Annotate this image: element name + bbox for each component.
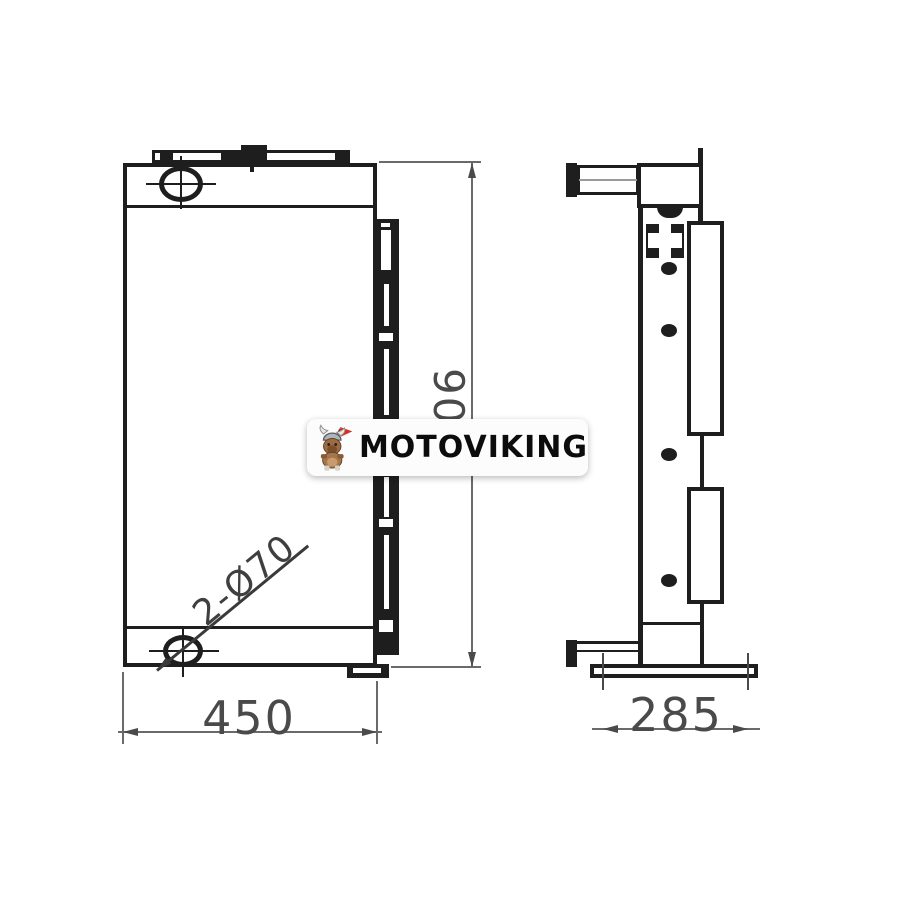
side-column-right-edge-mid bbox=[700, 436, 704, 487]
top-rail-tab-right bbox=[335, 153, 348, 162]
side-column-right-edge-low bbox=[700, 604, 704, 667]
mounting-dot bbox=[661, 448, 677, 461]
side-channel-slot bbox=[384, 535, 389, 609]
brand-mascot-icon bbox=[313, 422, 355, 474]
core-pad-lower bbox=[687, 487, 724, 604]
inlet-tube-flange bbox=[566, 163, 577, 197]
watermark-badge: MOTOVIKING bbox=[307, 419, 588, 476]
side-channel-slot bbox=[384, 349, 389, 415]
mounting-dot bbox=[661, 574, 677, 587]
core-pad-upper bbox=[687, 221, 724, 436]
top-port-crosshair-v bbox=[180, 156, 182, 209]
filler-cap-high bbox=[241, 145, 267, 163]
bottom-tank-divider bbox=[123, 626, 377, 629]
height-arrow-top bbox=[468, 163, 476, 178]
mounting-dot bbox=[661, 324, 677, 337]
base-plate bbox=[590, 664, 758, 678]
top-rail-tab-left bbox=[160, 153, 173, 162]
filler-cap-stem bbox=[250, 163, 254, 172]
side-bump bbox=[657, 207, 683, 218]
foot-bracket-mid bbox=[577, 650, 639, 652]
technical-drawing-canvas: 90 450 2-Ø70 bbox=[0, 0, 900, 900]
side-channel-gap bbox=[379, 620, 393, 632]
side-channel-gap bbox=[379, 333, 393, 341]
depth-dim-label: 285 bbox=[616, 688, 736, 742]
side-channel-gap bbox=[379, 519, 393, 527]
side-column-divider bbox=[641, 622, 702, 625]
height-ext-line-top bbox=[379, 161, 481, 163]
height-dim-label: 90 bbox=[424, 368, 472, 424]
top-tank-divider bbox=[123, 205, 377, 208]
side-top-stub bbox=[698, 148, 703, 165]
side-top-tank bbox=[637, 163, 703, 208]
side-channel-slot bbox=[381, 230, 391, 270]
brand-name: MOTOVIKING bbox=[359, 430, 588, 465]
width-arrow-left bbox=[123, 728, 138, 736]
side-column-left-edge bbox=[638, 207, 643, 667]
inlet-tube-midline bbox=[579, 179, 637, 181]
depth-ext-tick-right bbox=[747, 653, 749, 690]
depth-ext-tick-left bbox=[602, 653, 604, 690]
bottom-port-crosshair-h bbox=[149, 650, 219, 652]
width-dim-label: 450 bbox=[189, 691, 309, 745]
bottom-foot-tab-slot bbox=[353, 668, 381, 673]
side-channel-slot bbox=[384, 477, 389, 517]
side-channel-slot bbox=[384, 284, 389, 326]
side-channel-notch bbox=[381, 223, 390, 227]
width-arrow-right bbox=[362, 728, 377, 736]
bolt-flange-slot-h bbox=[648, 233, 682, 248]
foot-bracket-flange bbox=[566, 640, 577, 667]
height-arrow-bottom bbox=[468, 652, 476, 667]
foot-bracket-top bbox=[577, 641, 639, 644]
mounting-dot bbox=[661, 262, 677, 275]
